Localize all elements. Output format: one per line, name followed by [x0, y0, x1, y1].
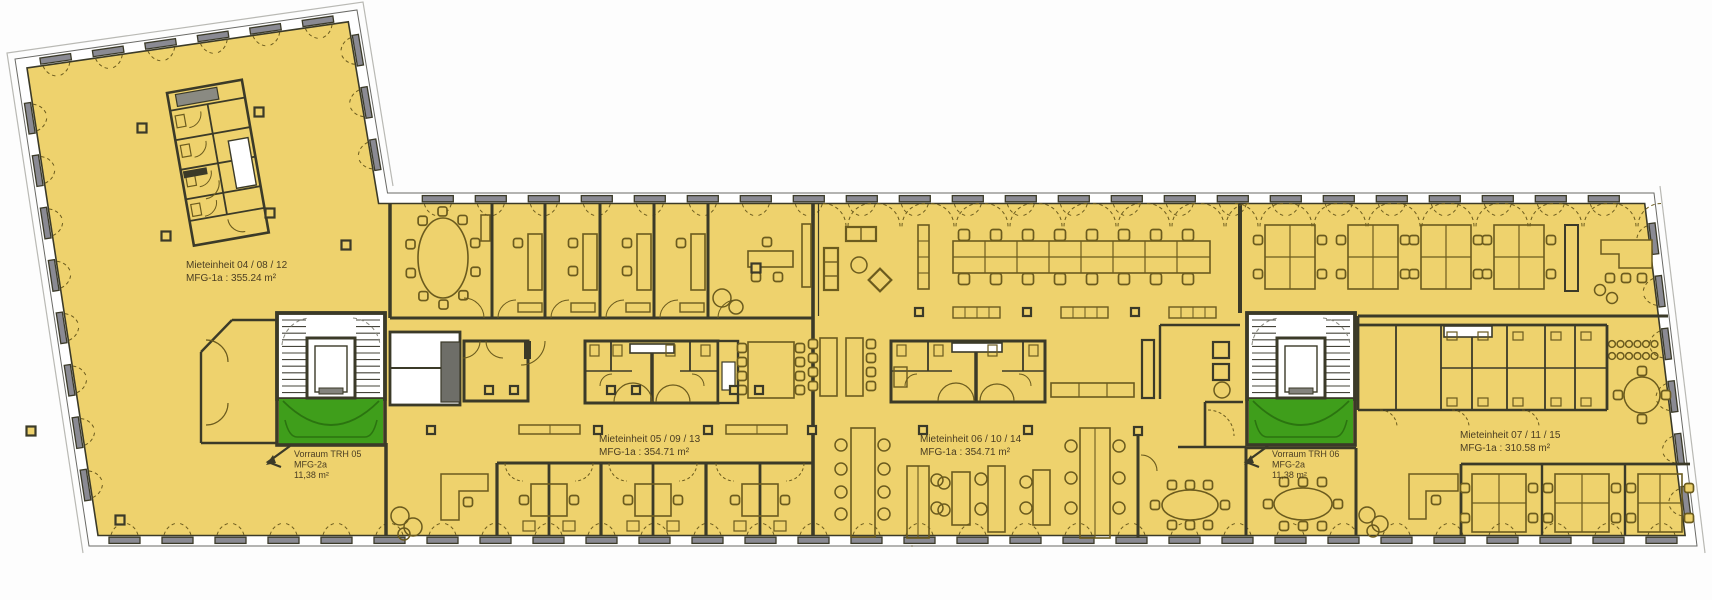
svg-text:11,38 m²: 11,38 m²	[294, 470, 329, 480]
svg-text:Mieteinheit 06 / 10 / 14: Mieteinheit 06 / 10 / 14	[920, 434, 1022, 445]
svg-text:MFG-1a : 354.71 m²: MFG-1a : 354.71 m²	[599, 447, 690, 458]
svg-text:MFG-1a : 354.71 m²: MFG-1a : 354.71 m²	[920, 447, 1011, 458]
svg-text:MFG-2a: MFG-2a	[1272, 460, 1305, 470]
svg-text:MFG-1a : 355.24 m²: MFG-1a : 355.24 m²	[186, 273, 277, 284]
svg-text:11,38 m²: 11,38 m²	[1272, 470, 1307, 480]
svg-text:MFG-1a : 310.58 m²: MFG-1a : 310.58 m²	[1460, 443, 1551, 454]
svg-text:Mieteinheit 04 / 08 / 12: Mieteinheit 04 / 08 / 12	[186, 260, 288, 271]
svg-text:Vorraum TRH 05: Vorraum TRH 05	[294, 449, 361, 459]
svg-text:Mieteinheit 05 / 09 / 13: Mieteinheit 05 / 09 / 13	[599, 434, 701, 445]
svg-text:Vorraum TRH 06: Vorraum TRH 06	[1272, 449, 1339, 459]
svg-text:Mieteinheit 07 / 11 / 15: Mieteinheit 07 / 11 / 15	[1460, 430, 1561, 441]
svg-text:MFG-2a: MFG-2a	[294, 460, 327, 470]
